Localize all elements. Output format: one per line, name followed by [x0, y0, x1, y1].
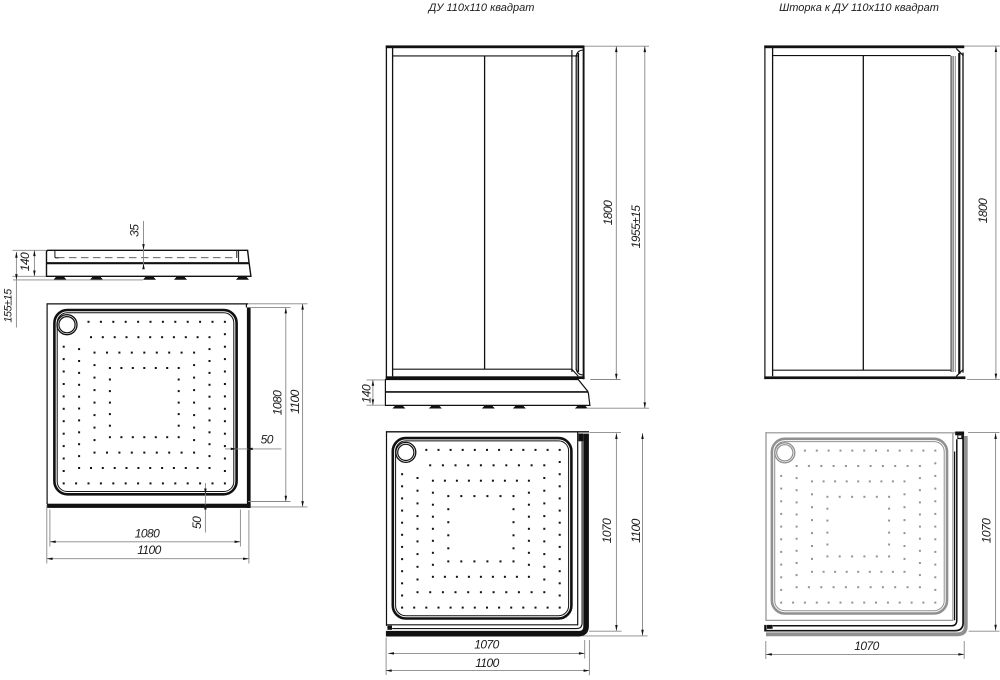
- svg-text:50: 50: [190, 516, 204, 529]
- svg-text:ДУ 110х110 квадрат: ДУ 110х110 квадрат: [427, 2, 535, 14]
- svg-text:155±15: 155±15: [3, 288, 15, 323]
- svg-text:1070: 1070: [854, 639, 879, 653]
- svg-text:1100: 1100: [137, 543, 161, 557]
- svg-text:1080: 1080: [271, 390, 285, 415]
- svg-text:1070: 1070: [474, 637, 499, 651]
- svg-text:1100: 1100: [475, 656, 499, 670]
- svg-text:1100: 1100: [629, 518, 643, 542]
- svg-text:1070: 1070: [600, 518, 614, 543]
- svg-text:1080: 1080: [135, 526, 160, 540]
- svg-text:140: 140: [18, 252, 32, 271]
- svg-text:1800: 1800: [601, 200, 615, 225]
- svg-text:1070: 1070: [980, 518, 994, 543]
- svg-text:1100: 1100: [288, 389, 302, 413]
- svg-text:Шторка к ДУ 110х110 квадрат: Шторка к ДУ 110х110 квадрат: [779, 2, 939, 14]
- svg-text:140: 140: [359, 384, 373, 403]
- svg-text:35: 35: [127, 224, 141, 237]
- svg-text:1800: 1800: [976, 198, 990, 223]
- svg-text:1955±15: 1955±15: [629, 205, 643, 249]
- svg-text:50: 50: [261, 432, 274, 446]
